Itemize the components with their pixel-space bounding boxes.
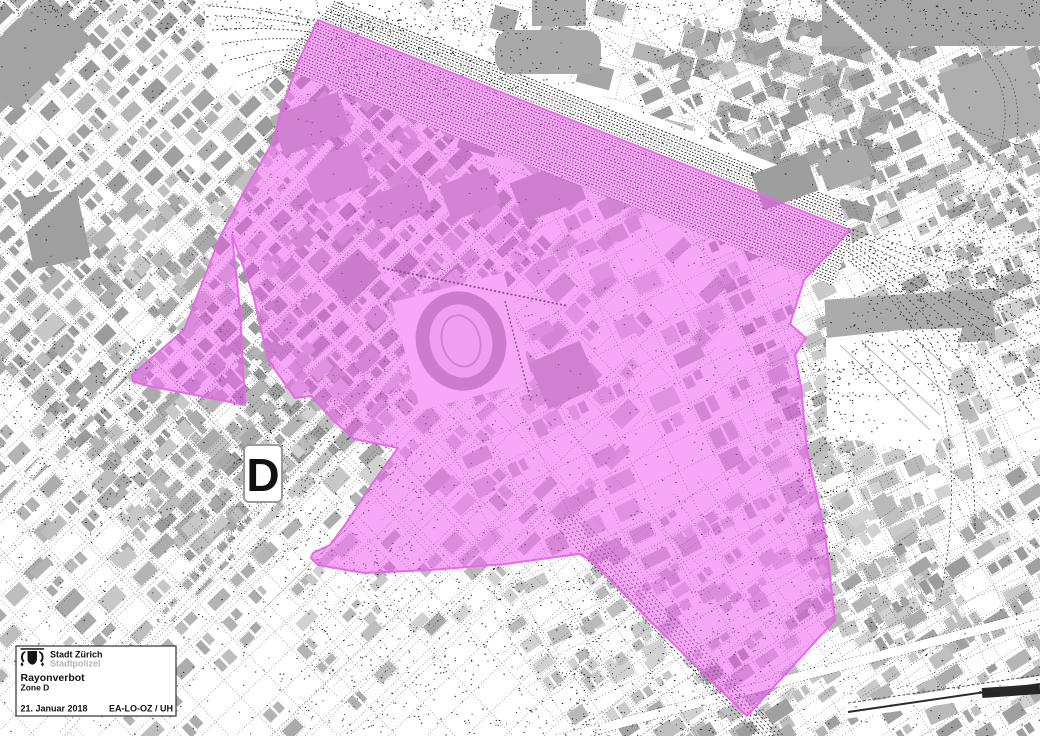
svg-text:D: D [246, 449, 279, 501]
svg-text:EA-LO-OZ / UH: EA-LO-OZ / UH [109, 704, 173, 714]
svg-text:Stadtpolizei: Stadtpolizei [50, 659, 101, 669]
svg-text:Zone D: Zone D [21, 683, 50, 693]
svg-text:21. Januar 2018: 21. Januar 2018 [21, 704, 88, 714]
